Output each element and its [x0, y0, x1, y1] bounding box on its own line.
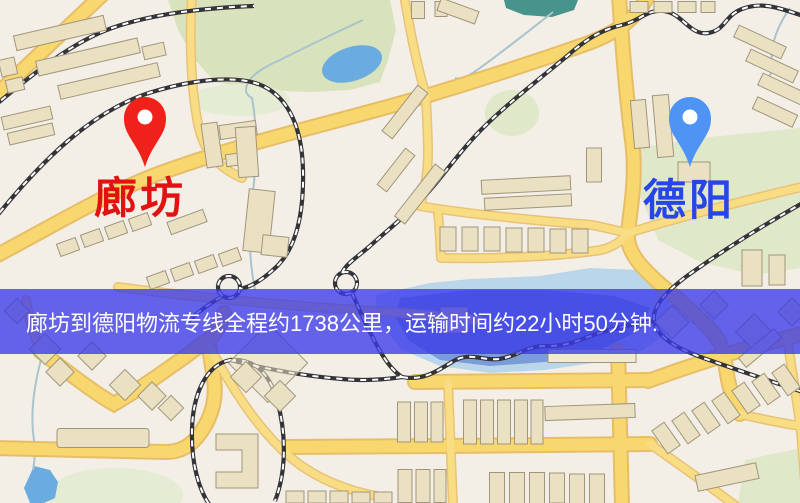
map-image [0, 0, 800, 503]
destination-city-label: 德阳 [643, 180, 735, 223]
pin-hole [138, 110, 153, 125]
pin-hole [683, 110, 698, 125]
route-summary-banner: 廊坊到德阳物流专线全程约1738公里，运输时间约22小时50分钟. [0, 289, 800, 354]
map-canvas: 廊坊 德阳 廊坊到德阳物流专线全程约1738公里，运输时间约22小时50分钟. [0, 0, 800, 503]
route-summary-text: 廊坊到德阳物流专线全程约1738公里，运输时间约22小时50分钟. [0, 306, 658, 338]
origin-city-label: 廊坊 [94, 178, 186, 221]
